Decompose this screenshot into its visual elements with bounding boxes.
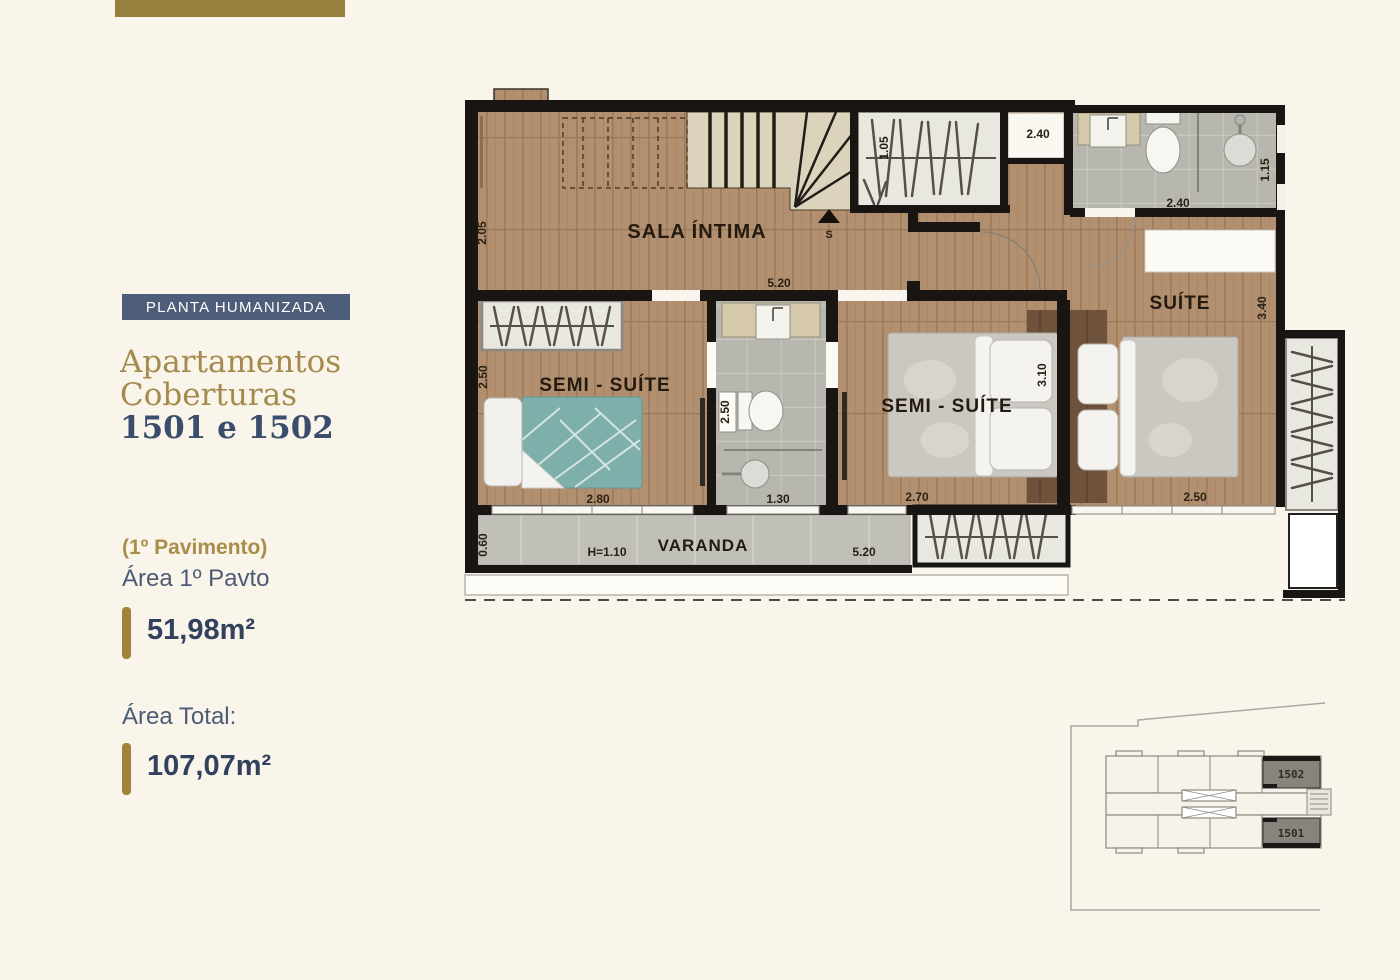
dim-bath-top-width: 2.40 [1166, 196, 1190, 210]
dim-sala-width: 5.20 [767, 276, 791, 290]
window [1277, 184, 1285, 210]
keyplan-unit-1501-label: 1501 [1278, 827, 1305, 840]
area-pavto-accent-bar [122, 607, 131, 659]
door-opening [826, 342, 838, 388]
window [1277, 125, 1285, 153]
room-label-semi-suite-1: SEMI - SUÍTE [539, 374, 670, 396]
semi-suite-2-wardrobe [915, 507, 1068, 565]
pavement-note: (1º Pavimento) [122, 536, 267, 560]
page-title: Apartamentos Coberturas 1501 e 1502 [120, 346, 420, 445]
dim-semi1-width: 2.80 [586, 492, 610, 506]
area-pavto-label: Área 1º Pavto [122, 565, 270, 593]
stair-core-icon [1307, 789, 1331, 815]
suite-dresser [1145, 230, 1275, 272]
keyplan-unit-1501: 1501 [1263, 818, 1320, 848]
pillow [1078, 410, 1118, 470]
room-label-suite: SUÍTE [1150, 292, 1211, 314]
toilet-icon [1146, 127, 1180, 173]
area-total-value: 107,07m² [147, 750, 271, 783]
dim-varanda-width: 5.20 [852, 545, 876, 559]
pillow [990, 408, 1052, 470]
shared-bathroom [716, 300, 826, 505]
area-total-label: Área Total: [122, 703, 236, 731]
dim-closet-top: 1.05 [877, 136, 891, 160]
top-accent-bar [115, 0, 345, 17]
terrace-edge [465, 575, 1068, 595]
dim-varanda-rail: H=1.10 [587, 545, 626, 559]
dim-semi2-width: 2.70 [905, 490, 929, 504]
room-label-semi-suite-2: SEMI - SUÍTE [881, 395, 1012, 417]
dim-suite-height: 3.40 [1255, 296, 1269, 320]
keyplan-unit-1502-label: 1502 [1278, 768, 1305, 781]
dim-semi1-height: 2.50 [476, 365, 490, 389]
door-opening [707, 342, 716, 388]
shower-icon [741, 460, 769, 488]
dim-sala-left: 2.05 [475, 221, 489, 245]
dim-suite-width: 2.50 [1183, 490, 1207, 504]
room-label-sala-intima: SALA ÍNTIMA [627, 220, 766, 243]
shower-icon [1224, 134, 1256, 166]
room-label-varanda: VARANDA [658, 536, 749, 555]
keyplan-unit-1502: 1502 [1263, 756, 1320, 788]
door-opening [838, 290, 907, 301]
dim-semi2-bed: 3.10 [1035, 363, 1049, 387]
window [1072, 506, 1275, 514]
dim-bath-mid-width: 1.30 [766, 492, 790, 506]
window [848, 506, 906, 514]
title-line-1: Apartamentos [120, 346, 420, 379]
suite-closet-annex [1286, 338, 1338, 588]
floorplan: S [455, 85, 1360, 610]
plan-type-badge: PLANTA HUMANIZADA [122, 294, 350, 320]
keyplan: 1502 1501 [1058, 693, 1358, 923]
door-opening [652, 290, 700, 301]
dim-bath-mid-height: 2.50 [718, 400, 732, 424]
dim-varanda-depth: 0.60 [476, 533, 490, 557]
semi-suite-1-wardrobe [482, 301, 622, 350]
toilet-icon [749, 391, 783, 431]
area-pavto-value: 51,98m² [147, 614, 255, 647]
area-total-accent-bar [122, 743, 131, 795]
pillow [484, 398, 522, 486]
door-opening [1085, 208, 1135, 217]
stair-direction-label: S [825, 229, 832, 241]
dim-niche-top: 2.40 [1026, 127, 1050, 141]
title-unit-numbers: 1501 e 1502 [120, 412, 420, 445]
plan-type-badge-label: PLANTA HUMANIZADA [146, 299, 326, 316]
annex-empty-box [1289, 514, 1337, 588]
dim-bath-top-height: 1.15 [1258, 158, 1272, 182]
pillow [1078, 344, 1118, 404]
window [727, 506, 819, 514]
semi-suite-1-bed [484, 397, 642, 488]
title-line-2: Coberturas [120, 379, 420, 412]
